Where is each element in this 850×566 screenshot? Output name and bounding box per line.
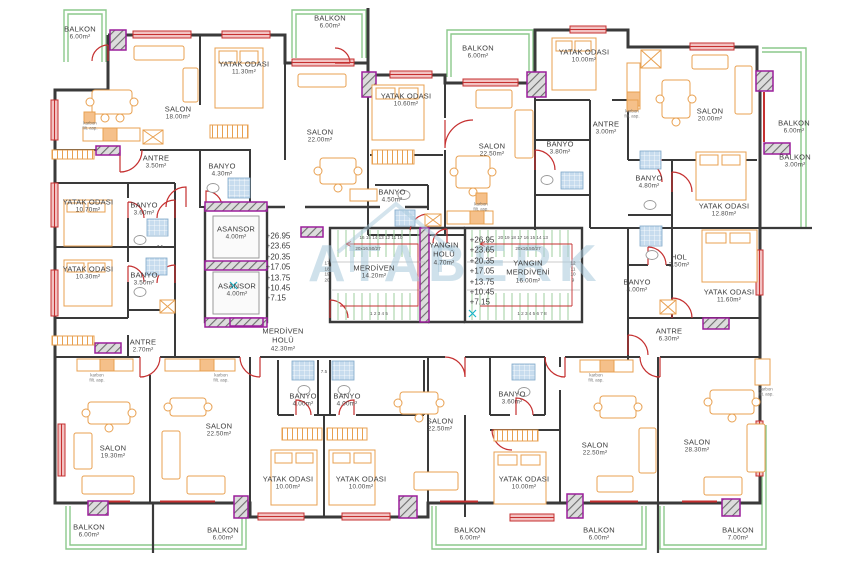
room-label-balkon-b1: BALKON6.00m² [73,522,105,539]
vent-label-1: karbon filt. asp. [82,121,97,132]
vent-label-5: karbon filt. asp. [213,373,228,384]
room-label-salon-2000: SALON20.00m² [697,106,723,123]
room-label-banyo-400r: BANYO4.00m² [623,277,650,294]
room-label-balkon-tc2: BALKON6.00m² [462,43,494,60]
right-stair-dimension: 20x16.50/27 [515,246,540,252]
room-label-yangin-holu: YANGIN HOLÜ4.70m² [424,241,464,268]
left-stair-bottom-numbers: 1 2 3 4 5 [370,311,388,317]
room-label-salon-2250bl: SALON22.50m² [206,421,232,438]
room-label-yatak-1000b1: YATAK ODASI10.00m² [263,474,314,491]
room-label-salon-1930: SALON19.30m² [100,443,126,460]
room-label-antre-270: ANTRE2.70m² [130,337,156,354]
room-label-yatak-1000b2: YATAK ODASI10.00m² [336,474,387,491]
room-label-banyo-350l: BANYO3.50m² [130,270,157,287]
room-label-banyo-400b1: BANYO4.00m² [289,391,316,408]
room-label-banyo-360b: BANYO3.60m² [498,389,525,406]
room-label-yatak-1060: YATAK ODASI10.60m² [381,91,432,108]
room-label-salon-18: SALON18.00m² [165,104,191,121]
room-labels-layer: BALKON6.00m² SALON18.00m² YATAK ODASI11.… [0,0,850,566]
right-stair-top-numbers: 20 19 18 17 16 15 14 13 [498,235,548,241]
room-label-merdiven: MERDİVEN14.20m² [353,263,394,280]
room-label-salon-2200: SALON22.00m² [307,127,333,144]
room-label-hol-350: HOL3.50m² [669,252,690,269]
room-label-yatak-1160: YATAK ODASI11.60m² [704,287,755,304]
elevation-list-right: +26.95 +23.65 +20.35 +17.05 +13.75 +10.4… [470,236,495,309]
room-label-banyo-430: BANYO4.30m² [208,161,235,178]
room-label-balkon-tc1: BALKON6.00m² [314,13,346,30]
right-stair-bottom-numbers: 1 2 3 4 5 6 7 8 [517,311,546,317]
room-label-yatak-1000b3: YATAK ODASI10.00m² [499,474,550,491]
room-label-banyo-480: BANYO4.80m² [635,173,662,190]
room-label-salon-2250br: SALON22.50m² [582,440,608,457]
room-label-salon-2250t: SALON22.50m² [479,141,505,158]
room-label-balkon-b5: BALKON7.00m² [722,525,754,542]
room-label-banyo-400b2: BANYO4.00m² [333,391,360,408]
room-label-asansor-2: ASANSOR4.00m² [218,281,256,298]
room-label-asansor-1: ASANSOR4.00m² [217,224,255,241]
room-label-salon-2250bm: SALON22.50m² [427,416,453,433]
room-label-balkon-r600: BALKON6.00m² [778,118,810,135]
room-label-merdiven-holu: MERDİVEN HOLÜ42.30m² [252,327,314,354]
vent-label-6: karbon filt. asp. [588,373,603,384]
vent-label-2: karbon filt. asp. [473,202,488,213]
room-label-yatak-1000tr: YATAK ODASI10.00m² [559,47,610,64]
shaft-label-1: 7.5 [157,244,163,250]
room-label-balkon-tl: BALKON6.00m² [64,24,96,41]
vent-label-3: karbon filt. asp. [624,109,639,120]
left-stair-top-numbers: 16 15 14 13 12 11 10 [359,235,402,241]
room-label-balkon-b4: BALKON6.00m² [583,525,615,542]
room-label-antre-630: ANTRE6.30m² [656,326,682,343]
room-label-balkon-b3: BALKON6.00m² [454,525,486,542]
room-label-yatak-1070: YATAK ODASI10.70m² [63,197,114,214]
room-label-antre-300: ANTRE3.00m² [593,119,619,136]
room-label-balkon-b2: BALKON6.00m² [207,525,239,542]
floor-plan: ATABERK BALKON6.00m² SALON18.00m² YATAK … [0,0,850,566]
room-label-banyo-360l: BANYO3.60m² [130,200,157,217]
room-label-yatak-1130: YATAK ODASI11.30m² [219,59,270,76]
room-label-banyo-450: BANYO4.50m² [378,187,405,204]
right-stair-side-numbers: 12 11 10 9 [570,261,575,284]
room-label-balkon-r300: BALKON3.00m² [779,152,811,169]
left-stair-side-numbers: 17 18 19 20 [324,261,329,284]
room-label-yatak-1030: YATAK ODASI10.30m² [63,264,114,281]
room-label-antre-350a: ANTRE3.50m² [143,153,169,170]
room-label-yangin-merdiveni: YANGIN MERDİVENİ16.00m² [497,259,559,286]
room-label-salon-2830: SALON28.30m² [684,437,710,454]
room-label-yatak-1280: YATAK ODASI12.80m² [699,201,750,218]
vent-label-4: karbon filt. asp. [89,373,104,384]
elevation-list-left: +26.95 +23.65 +20.35 +17.05 +13.75 +10.4… [266,232,291,305]
shaft-label-2: 7.5 [321,369,327,375]
vent-label-7: karbon filt. asp. [758,387,773,398]
left-stair-dimension: 20x16.50/27 [355,246,380,252]
room-label-banyo-380: BANYO3.80m² [546,139,573,156]
